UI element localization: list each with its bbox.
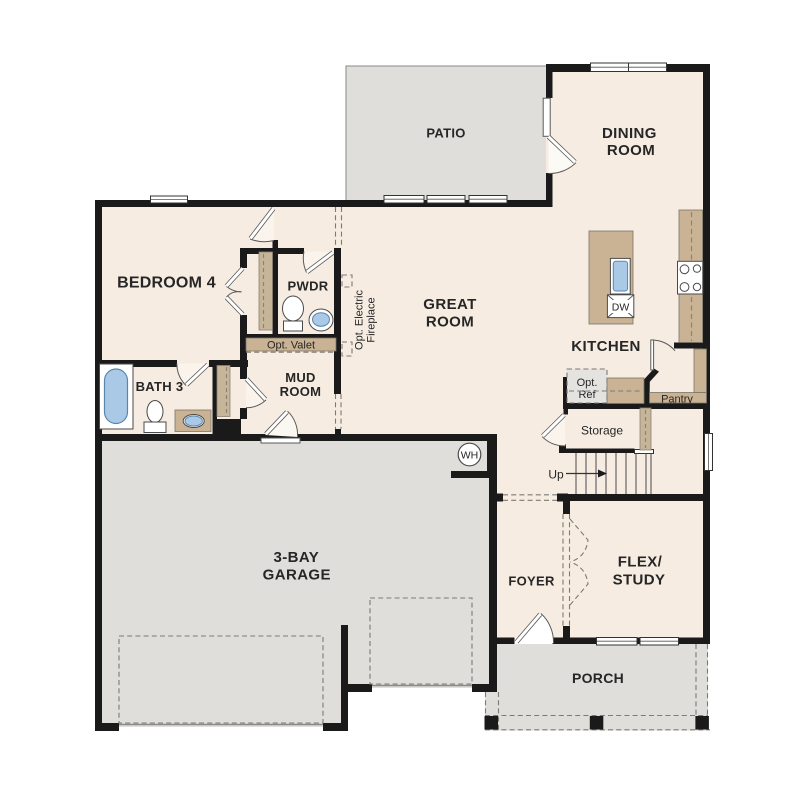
svg-text:Opt. Electric: Opt. Electric	[354, 290, 366, 350]
svg-text:DW: DW	[612, 302, 630, 314]
svg-text:Opt. Valet: Opt. Valet	[267, 340, 315, 352]
svg-text:MUD: MUD	[285, 370, 316, 385]
svg-text:Storage: Storage	[581, 424, 623, 438]
svg-text:Up: Up	[548, 468, 564, 482]
svg-text:PORCH: PORCH	[572, 670, 624, 686]
svg-text:WH: WH	[461, 450, 479, 462]
svg-text:KITCHEN: KITCHEN	[571, 338, 640, 355]
svg-text:DINING: DINING	[602, 125, 657, 142]
svg-text:GARAGE: GARAGE	[263, 567, 331, 584]
svg-text:GREAT: GREAT	[423, 296, 476, 313]
svg-text:ROOM: ROOM	[607, 142, 655, 159]
svg-text:Opt.: Opt.	[577, 377, 598, 389]
svg-text:FLEX/: FLEX/	[618, 554, 663, 571]
svg-text:PATIO: PATIO	[426, 126, 465, 141]
svg-text:STUDY: STUDY	[613, 572, 666, 589]
svg-text:PWDR: PWDR	[288, 279, 329, 294]
svg-text:BATH 3: BATH 3	[136, 379, 184, 394]
svg-text:Pantry: Pantry	[661, 394, 693, 406]
svg-text:BEDROOM 4: BEDROOM 4	[117, 275, 216, 292]
svg-text:ROOM: ROOM	[280, 384, 322, 399]
svg-text:ROOM: ROOM	[426, 314, 474, 331]
svg-text:Fireplace: Fireplace	[366, 297, 378, 342]
svg-text:3-BAY: 3-BAY	[273, 549, 319, 566]
svg-text:FOYER: FOYER	[508, 574, 555, 589]
